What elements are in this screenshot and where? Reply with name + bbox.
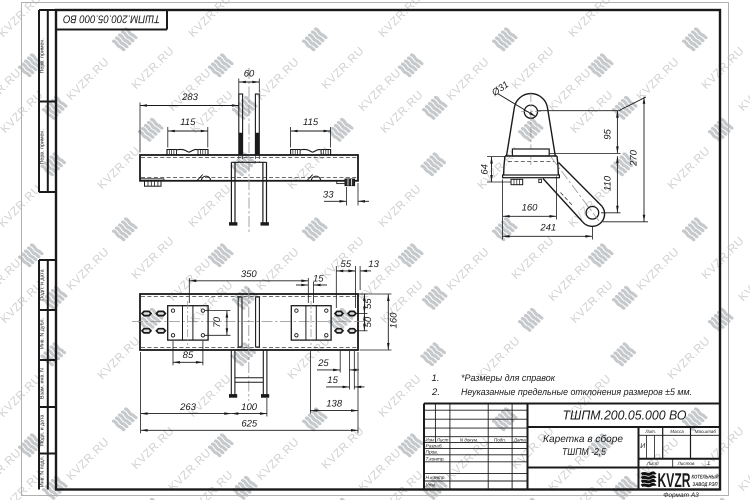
svg-text:283: 283 [181,92,199,103]
svg-text:270: 270 [628,149,639,167]
svg-text:Инв. N дубл.: Инв. N дубл. [40,318,46,349]
svg-text:*Размеры для справок: *Размеры для справок [461,373,555,384]
svg-text:55: 55 [363,298,374,309]
svg-text:N докум.: N докум. [460,437,479,442]
svg-text:138: 138 [326,399,343,410]
svg-text:350: 350 [241,269,258,280]
svg-text:160: 160 [522,202,539,213]
svg-text:Дата: Дата [513,437,527,442]
svg-text:КОТЕЛЬНЫЙ: КОТЕЛЬНЫЙ [692,474,719,481]
svg-text:Листов: Листов [677,461,695,466]
svg-text:Формат А3: Формат А3 [663,492,699,499]
svg-text:Изм: Изм [425,437,434,442]
svg-text:625: 625 [241,419,258,430]
svg-text:Подп. и дата: Подп. и дата [40,415,46,446]
svg-text:KVZR: KVZR [658,470,691,492]
svg-text:ТШПМ -2,5: ТШПМ -2,5 [562,447,606,458]
svg-text:95: 95 [602,129,613,140]
svg-text:Неуказанные предельные отклоне: Неуказанные предельные отклонения размер… [461,387,692,398]
svg-text:115: 115 [180,117,196,128]
svg-text:241: 241 [539,222,556,233]
svg-text:50: 50 [363,316,374,327]
svg-text:Н.контр.: Н.контр. [426,475,446,481]
svg-text:Каретка в сборе: Каретка в сборе [543,434,623,445]
svg-text:Подп. и дата: Подп. и дата [40,269,46,300]
svg-text:Взам. инв. N: Взам. инв. N [40,368,46,399]
svg-text:ТШПМ.200.05.000 ВО: ТШПМ.200.05.000 ВО [563,408,687,423]
svg-text:100: 100 [241,402,258,413]
svg-text:Масса: Масса [670,429,684,434]
svg-text:33: 33 [323,190,334,201]
svg-text:Лист: Лист [436,437,449,442]
svg-text:Утв.: Утв. [426,483,437,489]
svg-text:64: 64 [480,164,491,175]
svg-text:55: 55 [341,259,352,270]
svg-text:1: 1 [707,461,710,467]
svg-text:160: 160 [389,312,400,329]
svg-text:Разраб.: Разраб. [426,443,443,449]
svg-text:70: 70 [212,316,223,327]
svg-text:Т.контр.: Т.контр. [426,456,445,462]
svg-text:Перв. примен.: Перв. примен. [40,129,46,164]
svg-text:ТШПМ.200.05.000 ВО: ТШПМ.200.05.000 ВО [63,13,160,25]
svg-text:Лист: Лист [646,461,659,466]
svg-text:110: 110 [602,175,613,191]
svg-text:1.: 1. [432,373,440,384]
svg-text:115: 115 [303,117,319,128]
svg-text:85: 85 [183,350,194,361]
svg-text:60: 60 [244,69,255,80]
svg-text:Подп.: Подп. [494,437,506,442]
svg-text:15: 15 [313,274,324,285]
svg-text:13: 13 [368,259,379,270]
svg-text:ЗАВОД РЭП: ЗАВОД РЭП [693,482,718,488]
svg-text:Масштаб: Масштаб [695,429,717,434]
svg-text:25: 25 [317,358,329,369]
svg-text:Перв. примен.: Перв. примен. [40,38,46,73]
svg-text:Инв. N подл.: Инв. N подл. [40,456,46,487]
svg-text:Лит.: Лит. [644,429,656,434]
svg-text:2.: 2. [431,387,440,398]
svg-text:15: 15 [327,375,338,386]
svg-text:263: 263 [179,402,197,413]
svg-text:Пров.: Пров. [426,449,439,455]
